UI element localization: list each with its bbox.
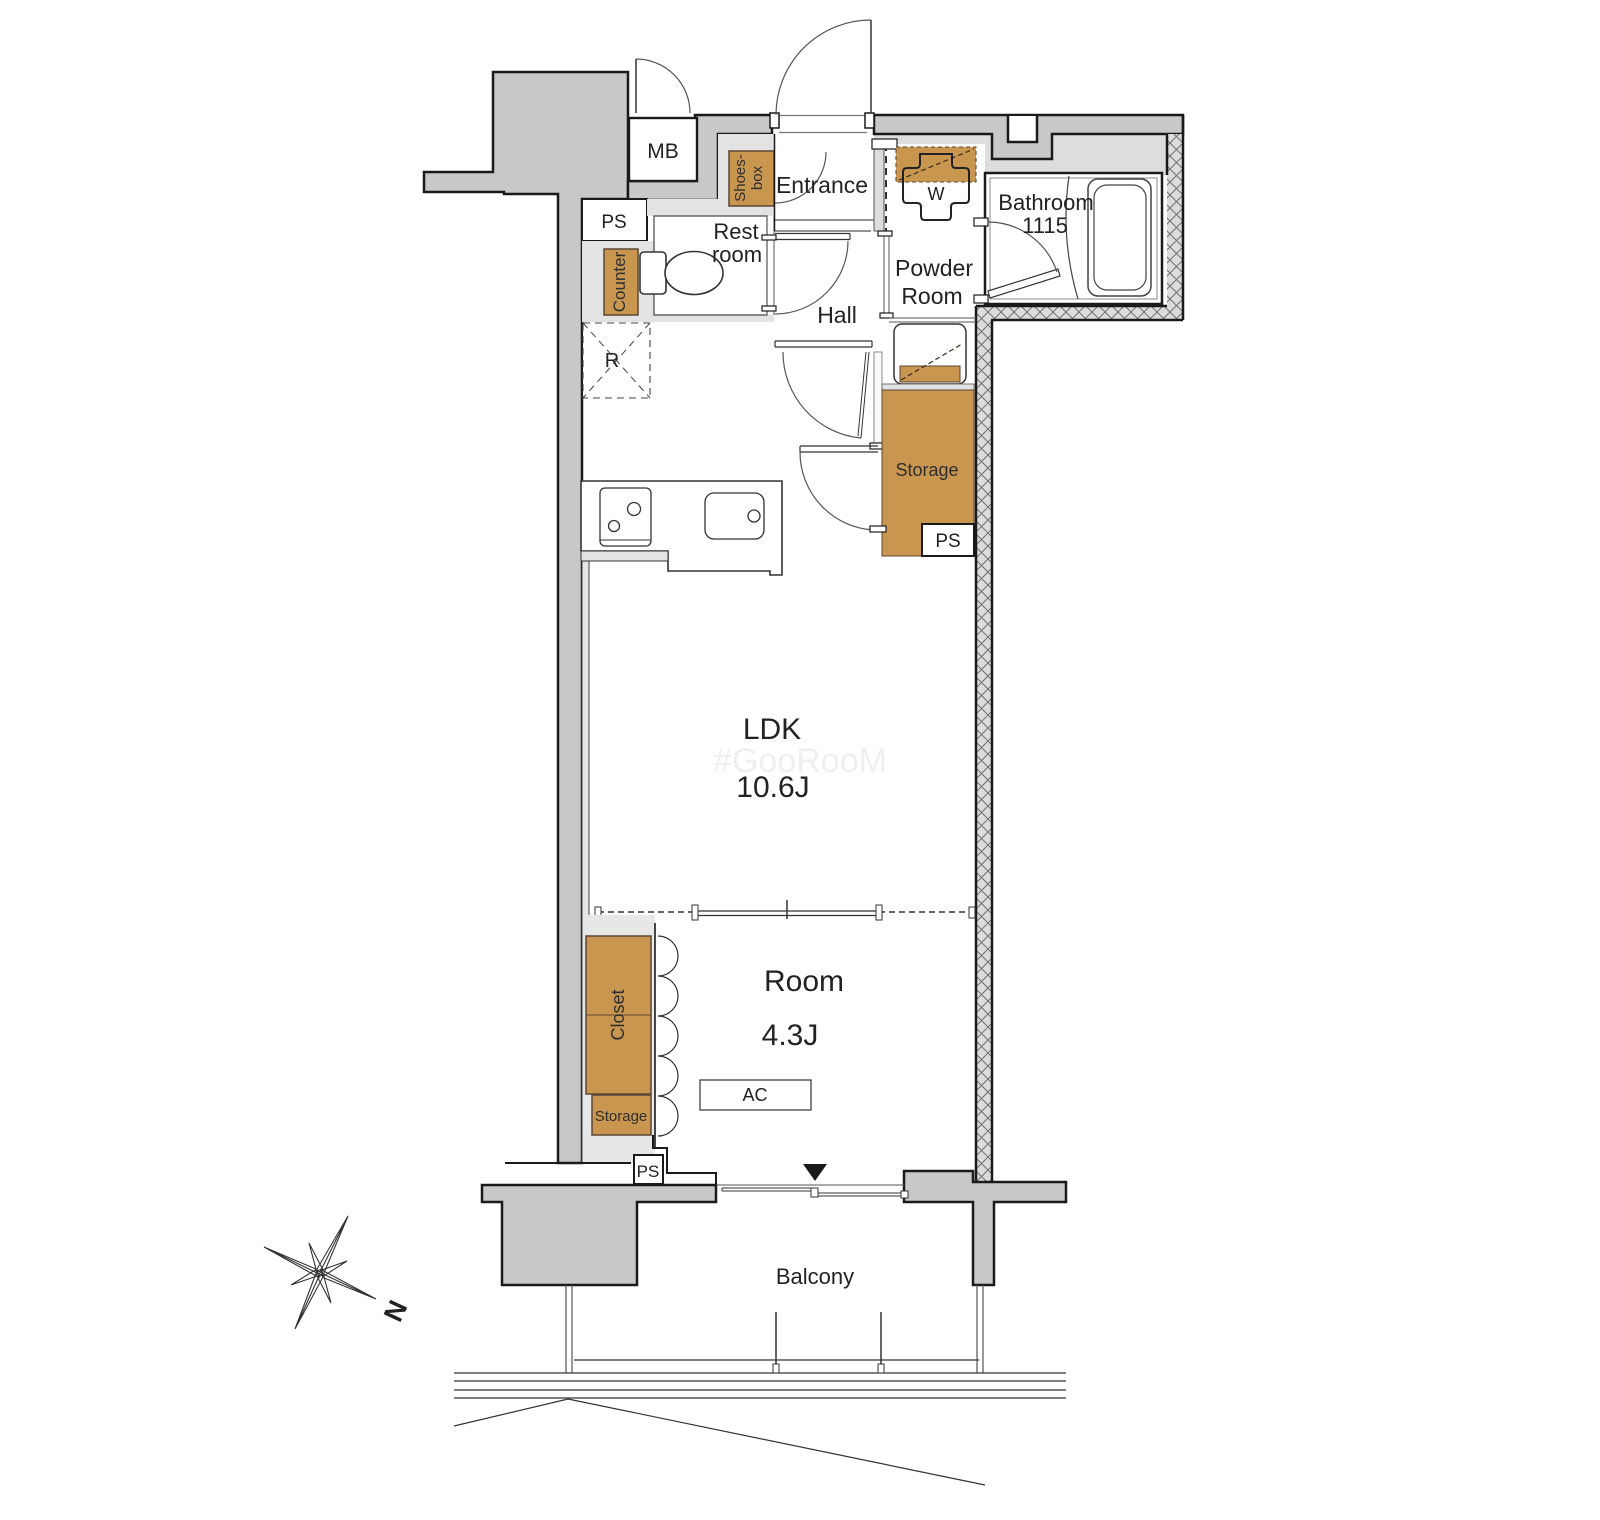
- svg-text:box: box: [749, 165, 766, 190]
- svg-text:PS: PS: [601, 212, 626, 233]
- svg-text:PS: PS: [935, 531, 960, 552]
- svg-text:Entrance: Entrance: [776, 172, 868, 198]
- svg-text:Bathroom: Bathroom: [998, 190, 1093, 215]
- svg-text:LDK: LDK: [743, 713, 801, 746]
- svg-text:Storage: Storage: [595, 1108, 648, 1125]
- svg-text:W: W: [928, 184, 945, 204]
- svg-text:Hall: Hall: [817, 302, 857, 328]
- svg-text:AC: AC: [742, 1085, 767, 1105]
- svg-text:Counter: Counter: [610, 251, 629, 312]
- svg-text:PS: PS: [637, 1162, 660, 1181]
- svg-text:R: R: [605, 350, 619, 372]
- svg-text:10.6J: 10.6J: [736, 771, 809, 804]
- svg-text:Room: Room: [901, 283, 962, 309]
- svg-text:MB: MB: [647, 140, 679, 163]
- svg-text:Shoes-: Shoes-: [732, 154, 749, 202]
- svg-text:Room: Room: [764, 965, 844, 998]
- svg-text:4.3J: 4.3J: [762, 1019, 819, 1052]
- svg-text:1115: 1115: [1022, 213, 1068, 238]
- svg-text:Storage: Storage: [895, 460, 958, 480]
- svg-text:room: room: [712, 242, 762, 267]
- svg-text:Rest: Rest: [713, 219, 758, 244]
- svg-text:Balcony: Balcony: [776, 1264, 854, 1289]
- svg-text:Powder: Powder: [895, 255, 973, 281]
- svg-text:Closet: Closet: [608, 989, 628, 1040]
